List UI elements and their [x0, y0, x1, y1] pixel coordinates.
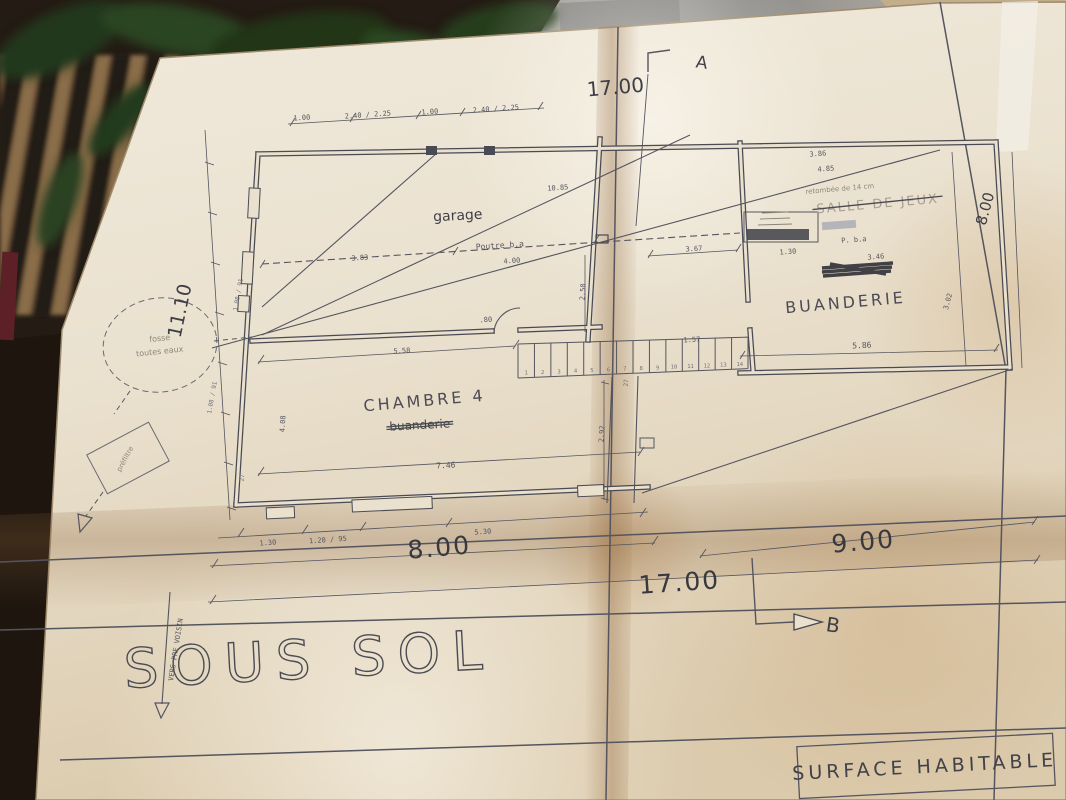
window	[266, 507, 294, 519]
stair-number: 1	[525, 371, 528, 377]
dim-label: 1.30	[259, 538, 276, 547]
stair-number: 13	[720, 363, 727, 369]
dim-label: 3.67	[685, 245, 702, 254]
stair-number: 11	[687, 364, 694, 370]
garage-door-pier	[484, 146, 495, 155]
dim-label: 4.00	[503, 256, 520, 265]
window	[577, 485, 603, 497]
dim-bottom-8: 8.00	[406, 530, 472, 564]
photo-of-floor-plan: 1234567891011121314 17.00A1.002.40 / 2.2…	[0, 0, 1066, 800]
dim-label: 2.50	[579, 283, 588, 300]
dim-label: 3.46	[867, 252, 884, 261]
wall-thickness-label: 27	[239, 474, 246, 482]
stair-number: 8	[640, 366, 643, 372]
dim-label: 4.85	[817, 164, 834, 173]
dim-top-17: 17.00	[586, 73, 645, 102]
stair-number: 3	[557, 369, 560, 375]
window	[248, 188, 261, 219]
stair-number: 9	[656, 365, 659, 371]
dim-label: 3.86	[809, 149, 826, 158]
dim-label: .80	[479, 316, 492, 325]
dim-bottom-17: 17.00	[638, 565, 721, 600]
dim-label: 7.46	[436, 460, 456, 470]
stair-number: 2	[541, 370, 544, 376]
room-label-garage: garage	[433, 207, 483, 226]
blueprint-scene: 1234567891011121314 17.00A1.002.40 / 2.2…	[0, 0, 1066, 800]
dim-label: 5.86	[852, 340, 872, 350]
closet-dark-fill	[747, 229, 809, 240]
stair-number: 6	[607, 367, 610, 373]
stair-number: 12	[704, 363, 711, 369]
dim-label: 2.92	[598, 425, 607, 442]
dim-label: 3.83	[351, 253, 368, 262]
dim-label: 10.85	[547, 183, 569, 192]
stair-number: 14	[736, 362, 743, 368]
dim-label: 1.30	[779, 247, 796, 256]
stair-number: 5	[590, 368, 593, 374]
dim-label: 4.08	[279, 415, 288, 432]
garage-door-pier	[426, 146, 437, 155]
stair-number: 7	[623, 367, 626, 373]
stair-number: 10	[671, 365, 678, 371]
dim-label: 5.30	[474, 527, 491, 536]
dim-label: 1.57	[683, 336, 700, 345]
dim-label: 1.00	[421, 107, 438, 116]
dim-label: 1.00	[293, 113, 310, 122]
wall-thickness-label: 27	[623, 379, 630, 387]
dim-label: 5.58	[393, 347, 410, 356]
dim-bottom-9: 9.00	[830, 524, 896, 558]
